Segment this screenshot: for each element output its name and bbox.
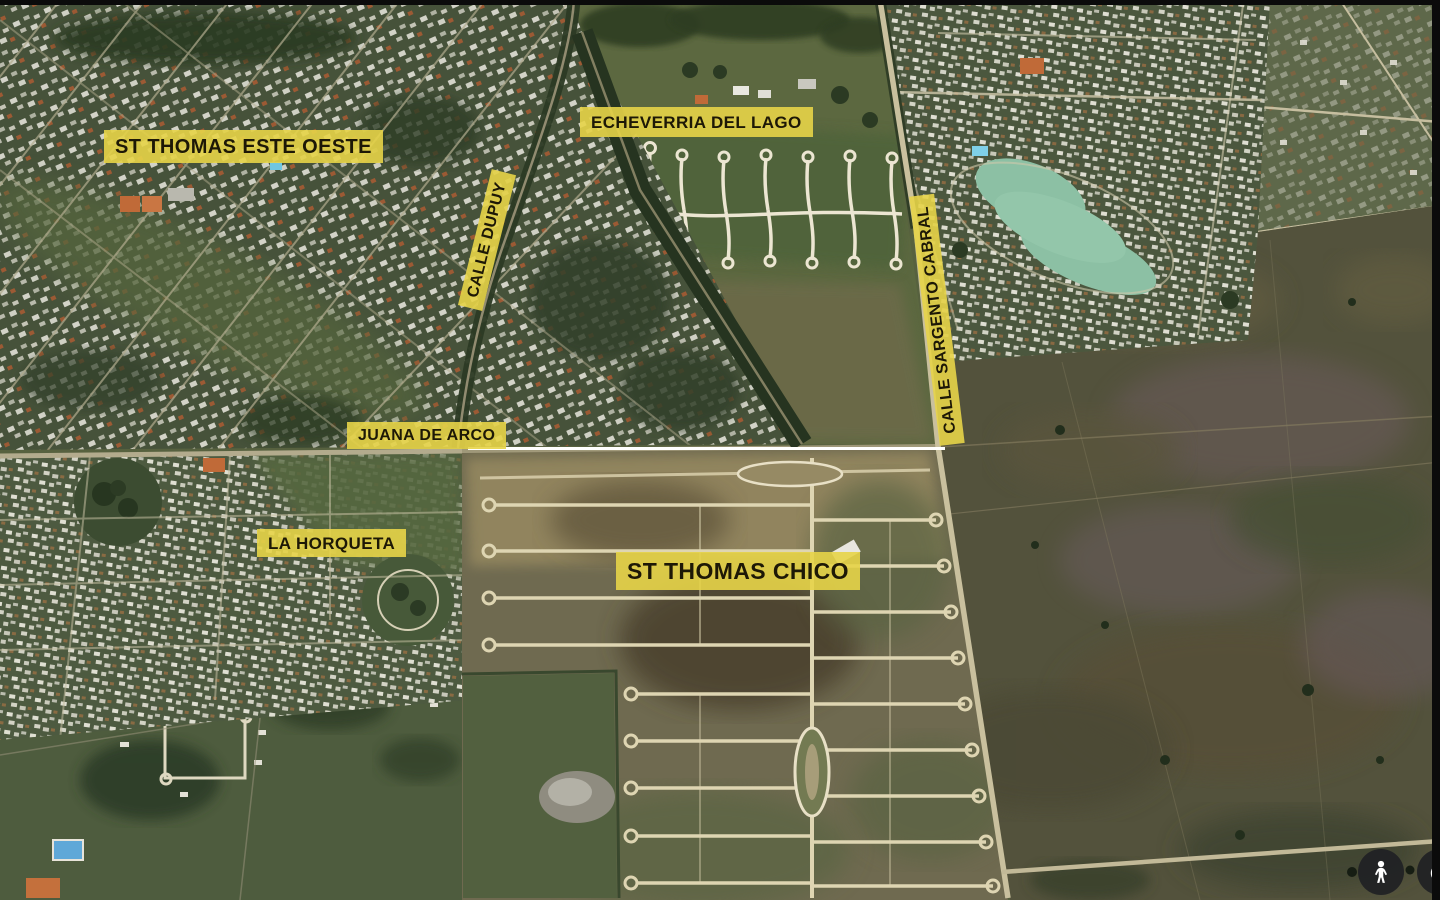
map-label-juana-de-arco: JUANA DE ARCO	[347, 422, 506, 449]
map-viewport[interactable]: ST THOMAS ESTE OESTE ECHEVERRIA DEL LAGO…	[0, 0, 1440, 900]
map-label-echeverria-del-lago: ECHEVERRIA DEL LAGO	[580, 107, 813, 137]
pegman-button[interactable]	[1358, 849, 1404, 895]
map-label-st-thomas-este-oeste: ST THOMAS ESTE OESTE	[104, 130, 383, 163]
region-la-horqueta	[0, 450, 475, 745]
letterbox-top	[0, 0, 1440, 5]
region-st-thomas-chico	[460, 434, 1015, 900]
pegman-icon	[1368, 859, 1394, 885]
road-highlight-juana-de-arco	[468, 447, 945, 450]
map-label-la-horqueta: LA HORQUETA	[257, 529, 406, 557]
letterbox-right	[1432, 0, 1440, 900]
map-label-st-thomas-chico: ST THOMAS CHICO	[616, 552, 860, 590]
